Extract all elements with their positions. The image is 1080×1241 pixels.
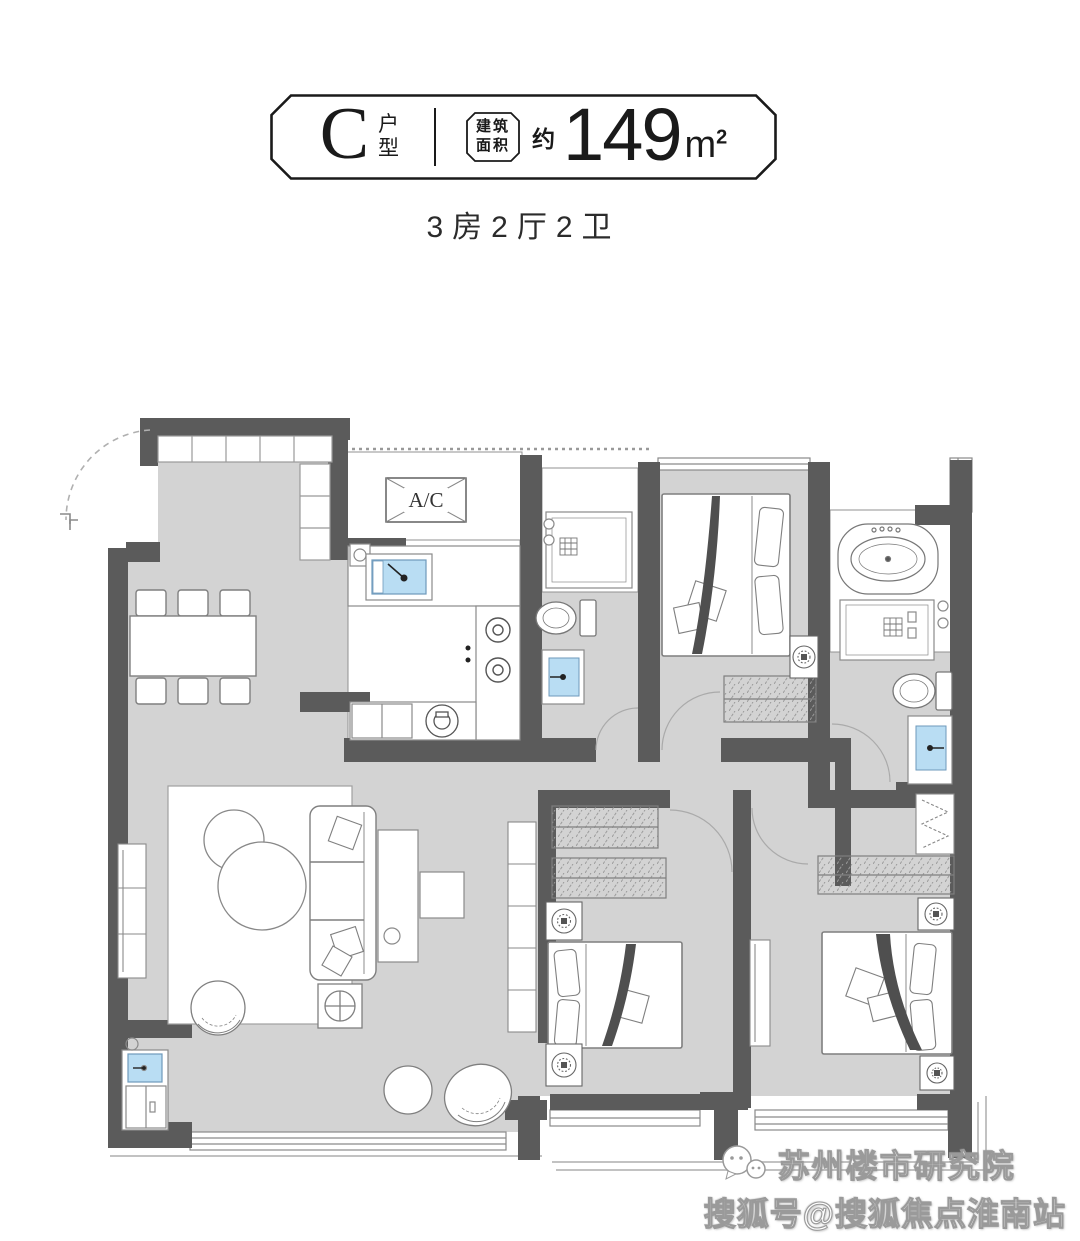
fan-icon bbox=[546, 1044, 582, 1086]
ac-label: A/C bbox=[408, 488, 443, 512]
fan-icon bbox=[918, 898, 954, 930]
floor-lamp bbox=[318, 984, 362, 1028]
watermark-line2: 搜狐号@搜狐焦点淮南站 bbox=[704, 1189, 1066, 1235]
watermark: 苏州楼市研究院 搜狐号@搜狐焦点淮南站 bbox=[704, 1141, 1066, 1235]
bathtub bbox=[838, 524, 938, 594]
window-living-bottom bbox=[190, 1132, 506, 1150]
watermark-line1: 苏州楼市研究院 bbox=[718, 1141, 1066, 1187]
drain-grid2 bbox=[884, 618, 902, 636]
fan-icon bbox=[790, 636, 818, 678]
chat-bubbles-icon bbox=[718, 1144, 770, 1184]
dining-set bbox=[130, 590, 256, 704]
closet-zigzag bbox=[916, 794, 954, 854]
wardrobe2 bbox=[724, 676, 816, 722]
floorplan-page: C 户 型 建筑 面积 约 149 m2 3房2厅2卫 bbox=[0, 0, 1080, 1241]
window-bedroom2-top bbox=[658, 458, 810, 470]
bookshelf3 bbox=[508, 822, 536, 1032]
drain-grid bbox=[560, 538, 577, 555]
toilet1 bbox=[536, 600, 596, 636]
shower2 bbox=[840, 600, 948, 660]
bed2 bbox=[662, 494, 790, 656]
shower-tray bbox=[544, 512, 632, 588]
long-shelf bbox=[818, 856, 954, 894]
floorplan-drawing: A/C bbox=[0, 0, 1080, 1241]
entry-door-leaf bbox=[60, 514, 78, 530]
bed3 bbox=[548, 942, 682, 1048]
window-master-bottom bbox=[755, 1110, 948, 1130]
sofa-console bbox=[378, 830, 418, 962]
tv-panel bbox=[750, 940, 770, 1046]
kitchen-counter-right bbox=[476, 606, 520, 740]
sofa bbox=[310, 806, 376, 980]
fan-icon bbox=[546, 902, 582, 940]
sink2 bbox=[908, 716, 952, 784]
sink1 bbox=[542, 650, 584, 704]
tv-cabinet bbox=[118, 844, 146, 978]
coffee-table-large bbox=[218, 842, 306, 930]
entry-door-swing-arc bbox=[66, 430, 150, 520]
window-bedroom3-bottom bbox=[550, 1110, 700, 1126]
kitchen-sink bbox=[366, 554, 432, 600]
ottoman bbox=[384, 1066, 432, 1114]
laundry-cabinet bbox=[122, 1038, 168, 1130]
flower-table-icon bbox=[920, 1056, 954, 1090]
side-table bbox=[420, 872, 464, 918]
master-bed bbox=[822, 932, 952, 1054]
armchair bbox=[191, 981, 245, 1035]
dining-table bbox=[130, 616, 256, 676]
ac-unit-box: A/C bbox=[386, 478, 466, 522]
toilet2 bbox=[893, 672, 952, 710]
